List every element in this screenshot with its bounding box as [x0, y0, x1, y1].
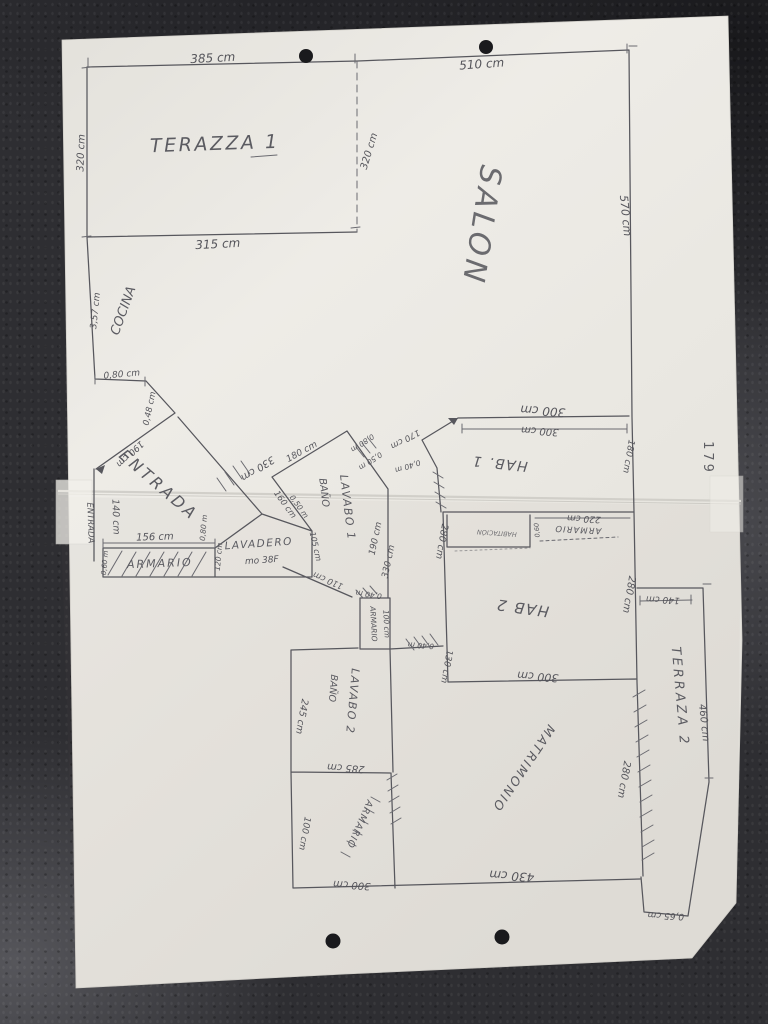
photo-scene: TERAZZA 1 SALON COCINA ENTRADA ENTRADA A… — [0, 0, 768, 1024]
dim-matrimonio-door: 0,40 m — [407, 640, 434, 651]
dim-armario-entrada-w: 156 cm — [136, 531, 174, 543]
punch-hole — [495, 930, 510, 945]
tape-right — [710, 476, 743, 532]
punch-hole — [479, 40, 493, 54]
room-label-armario-pasillo: ARMARIO — [368, 605, 379, 642]
punch-hole — [299, 49, 313, 63]
dim-entrada-wall: 140 cm — [109, 499, 121, 535]
dim-armario-hab1-w: 220 cm — [567, 512, 601, 524]
floor-plan-photo: TERAZZA 1 SALON COCINA ENTRADA ENTRADA A… — [0, 0, 768, 1024]
punch-hole — [326, 934, 341, 949]
room-label-entrada-side: ENTRADA — [84, 502, 95, 544]
dim-terr2-notch: 0,65 cm — [647, 909, 684, 921]
dim-terr1-top: 385 cm — [190, 50, 236, 66]
dim-terr1-left: 320 cm — [75, 134, 87, 172]
dim-armario-hab1-d: 0,60 — [532, 523, 541, 538]
dim-armario-pasillo-h: 100 cm — [381, 610, 391, 639]
dim-terr2-top: 140 cm — [646, 593, 680, 605]
room-label-terazza1: TERAZZA 1 — [150, 131, 280, 158]
page-number: 179 — [700, 441, 715, 475]
dim-terr1-bottom: 315 cm — [195, 236, 241, 252]
room-label-armario-entrada: ARMARIO — [126, 556, 193, 571]
